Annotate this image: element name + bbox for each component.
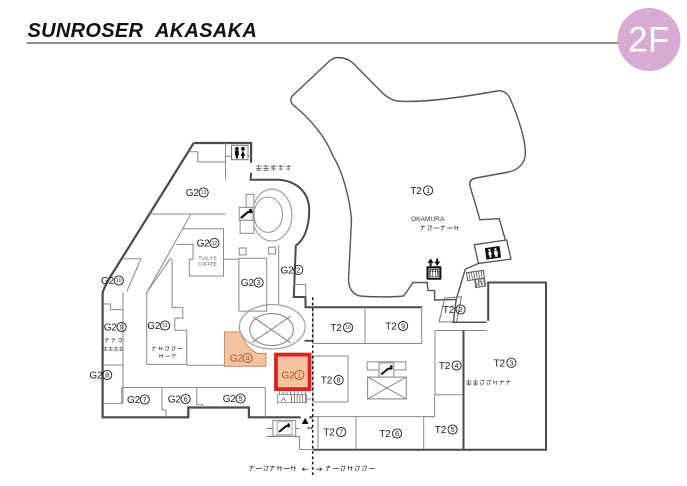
svg-text:T2: T2: [494, 358, 506, 369]
svg-text:T2: T2: [323, 428, 335, 439]
svg-text:2: 2: [459, 305, 463, 314]
svg-text:2F: 2F: [628, 21, 670, 60]
svg-text:10: 10: [116, 278, 122, 284]
svg-text:6: 6: [395, 429, 399, 438]
svg-text:7: 7: [339, 428, 343, 437]
svg-text:T2: T2: [443, 305, 455, 316]
svg-text:11: 11: [162, 323, 167, 329]
svg-text:9: 9: [120, 323, 124, 332]
svg-text:T2: T2: [439, 361, 451, 372]
svg-text:1: 1: [426, 186, 430, 195]
svg-text:G2: G2: [127, 395, 141, 406]
svg-text:3: 3: [509, 358, 513, 367]
svg-text:T2: T2: [435, 425, 447, 436]
svg-text:8: 8: [105, 371, 109, 380]
svg-text:G2: G2: [147, 321, 161, 332]
svg-text:G2: G2: [168, 395, 182, 406]
svg-text:10: 10: [345, 325, 351, 331]
svg-text:13: 13: [201, 190, 207, 196]
svg-text:1: 1: [297, 371, 301, 380]
svg-text:2: 2: [296, 265, 300, 274]
svg-text:G2: G2: [223, 394, 237, 405]
svg-text:G2: G2: [282, 371, 296, 382]
svg-text:3: 3: [257, 278, 261, 287]
svg-text:6: 6: [184, 395, 188, 404]
svg-text:5: 5: [451, 425, 455, 434]
svg-text:G2: G2: [241, 278, 255, 289]
svg-text:G2: G2: [186, 188, 200, 199]
svg-text:COFFEE: COFFEE: [198, 261, 217, 266]
svg-text:G2: G2: [197, 239, 211, 250]
svg-text:T2: T2: [330, 323, 342, 334]
svg-text:4: 4: [455, 361, 459, 370]
svg-text:SUNROSER AKASAKA: SUNROSER AKASAKA: [28, 20, 258, 42]
svg-text:5: 5: [239, 394, 243, 403]
svg-text:4: 4: [246, 354, 250, 363]
svg-text:G2: G2: [101, 276, 115, 287]
svg-text:T2: T2: [385, 322, 397, 333]
svg-text:G2: G2: [281, 266, 295, 277]
svg-text:OKAMURA: OKAMURA: [411, 216, 445, 223]
svg-text:G2: G2: [230, 354, 244, 365]
svg-text:G2: G2: [104, 323, 118, 334]
svg-text:TULLY’S: TULLY’S: [198, 256, 216, 261]
svg-text:T2: T2: [379, 429, 391, 440]
svg-text:G2: G2: [89, 371, 103, 382]
svg-text:T2: T2: [321, 376, 333, 387]
svg-text:9: 9: [401, 322, 405, 331]
svg-text:7: 7: [143, 395, 147, 404]
svg-text:12: 12: [212, 241, 218, 247]
svg-text:8: 8: [337, 376, 341, 385]
svg-text:T2: T2: [410, 186, 422, 197]
